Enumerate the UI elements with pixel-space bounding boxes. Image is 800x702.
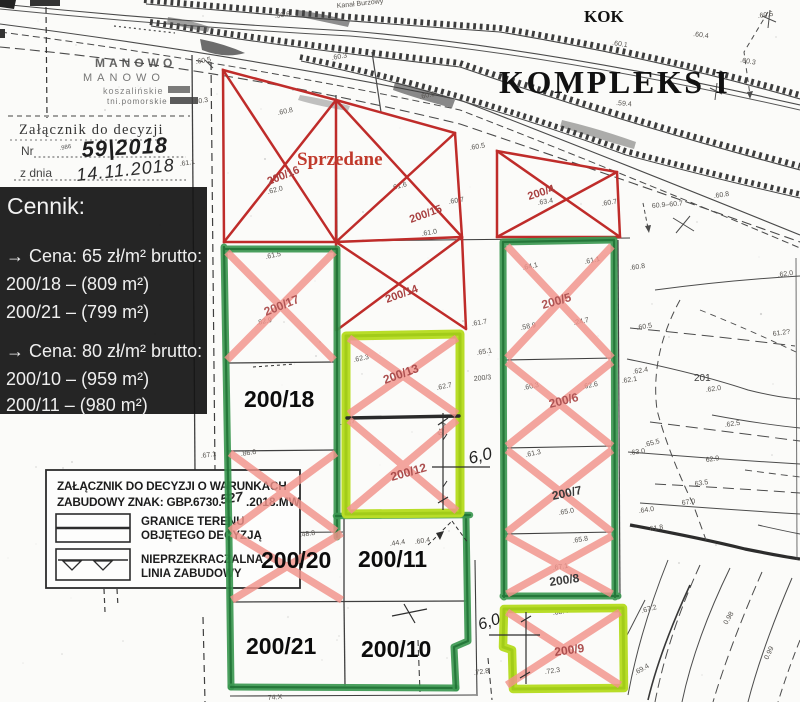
svg-text:Sprzedane: Sprzedane bbox=[297, 149, 383, 170]
svg-text:NIEPRZEKRACZALNA: NIEPRZEKRACZALNA bbox=[141, 554, 263, 566]
svg-text:200/21: 200/21 bbox=[246, 633, 317, 659]
svg-text:201: 201 bbox=[694, 373, 711, 384]
svg-text:200/18: 200/18 bbox=[244, 386, 315, 412]
svg-text:200/10 – (959 m²): 200/10 – (959 m²) bbox=[6, 369, 149, 389]
svg-text:ZAŁĄCZNIK DO DECYZJI O WARUNKA: ZAŁĄCZNIK DO DECYZJI O WARUNKACH bbox=[57, 479, 287, 493]
svg-text:200/11 – (980 m²): 200/11 – (980 m²) bbox=[6, 395, 148, 415]
svg-text:200/18 – (809 m²): 200/18 – (809 m²) bbox=[6, 274, 149, 294]
svg-text:KOMPLEKS I: KOMPLEKS I bbox=[499, 64, 730, 100]
svg-text:KOK: KOK bbox=[584, 7, 624, 26]
svg-text:74.X: 74.X bbox=[268, 694, 283, 702]
svg-text:ZABUDOWY ZNAK: GBP.6730.: ZABUDOWY ZNAK: GBP.6730. bbox=[57, 495, 222, 509]
svg-text:tni.pomorskie: tni.pomorskie bbox=[107, 97, 168, 106]
svg-text:MANOWO: MANOWO bbox=[95, 56, 176, 70]
svg-text:koszalińskie: koszalińskie bbox=[103, 86, 164, 96]
svg-text:→ Cena: 80 zł/m² brutto:: → Cena: 80 zł/m² brutto: bbox=[6, 341, 202, 361]
svg-text:Cennik:: Cennik: bbox=[7, 193, 85, 219]
svg-text:200/10: 200/10 bbox=[361, 636, 431, 662]
svg-text:200/21 – (799 m²): 200/21 – (799 m²) bbox=[6, 302, 149, 322]
svg-text:z dnia: z dnia bbox=[20, 166, 52, 180]
svg-text:.59.4: .59.4 bbox=[616, 100, 632, 108]
svg-text:200/20: 200/20 bbox=[261, 547, 331, 573]
svg-text:MANOWO: MANOWO bbox=[83, 72, 165, 84]
svg-text:Nr: Nr bbox=[21, 144, 34, 158]
svg-text:200/11: 200/11 bbox=[358, 546, 427, 572]
svg-text:→ Cena: 65 zł/m² brutto:: → Cena: 65 zł/m² brutto: bbox=[6, 246, 202, 266]
